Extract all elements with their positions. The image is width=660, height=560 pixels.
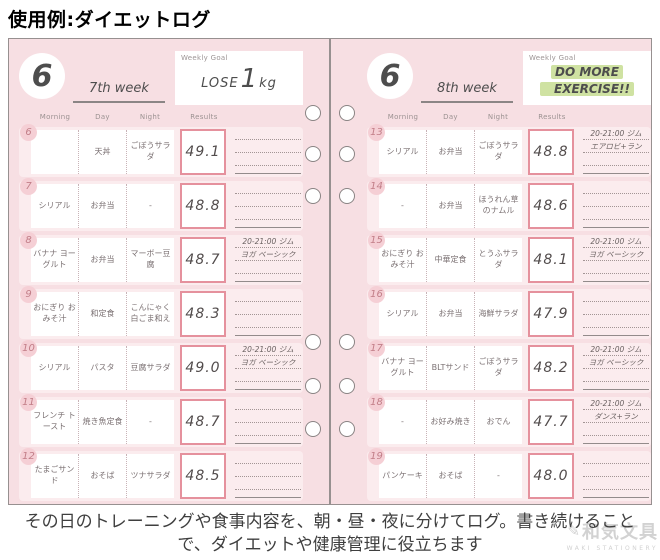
column-headers: Morning Day Night Results: [19, 113, 303, 125]
caption-text: その日のトレーニングや食事内容を、朝・昼・夜に分けてログ。書き続けることで、ダイ…: [10, 511, 650, 557]
notes-lines: 20-21:00 ジム ヨガ ベーシック: [583, 235, 649, 285]
meal-cells: - お好み焼き おでん: [379, 400, 522, 444]
planner-spread: 6 7th week Weekly Goal LOSE1kg Morning D…: [8, 38, 652, 505]
meal-night: -: [475, 454, 522, 498]
header-night: Night: [474, 113, 522, 121]
diary-row: 8 バナナ ヨーグルト お弁当 マーボー豆腐 48.7 20-21:00 ジム …: [19, 235, 303, 285]
note-underline: [235, 490, 301, 498]
date-badge: 17: [368, 340, 385, 357]
header-results: Results: [528, 113, 576, 121]
date-badge: 15: [368, 232, 385, 249]
diary-row: 14 - お弁当 ほうれん草 のナムル 48.6: [367, 181, 651, 231]
notes-lines: [583, 289, 649, 339]
weekly-goal-text: DO MORE EXERCISE!!: [529, 63, 645, 97]
punch-hole: [305, 188, 321, 204]
diary-row: 11 フレンチ トースト 焼き魚定食 - 48.7: [19, 397, 303, 447]
note-underline: [235, 274, 301, 282]
meal-day: パスタ: [79, 346, 127, 390]
notes-lines: [235, 451, 301, 501]
meal-morning: パンケーキ: [379, 454, 427, 498]
month-badge: 6: [19, 53, 65, 99]
week-label: 7th week: [73, 81, 165, 103]
date-badge: 8: [20, 232, 37, 249]
meal-night: とうふサラダ: [475, 238, 522, 282]
weight-result: 48.7: [180, 237, 226, 283]
note-line: [235, 397, 301, 410]
weight-result: 48.0: [528, 453, 574, 499]
note-line: 20-21:00 ジム: [583, 127, 649, 140]
notes-lines: 20-21:00 ジム ヨガ ベーシック: [583, 343, 649, 393]
punch-hole: [339, 146, 355, 162]
weight-result: 49.0: [180, 345, 226, 391]
notes-lines: 20-21:00 ジム ダンス+ラン: [583, 397, 649, 447]
punch-hole: [339, 378, 355, 394]
note-line: ダンス+ラン: [583, 410, 649, 423]
column-headers: Morning Day Night Results: [367, 113, 651, 125]
meal-cells: おにぎり おみそ汁 中華定食 とうふサラダ: [379, 238, 522, 282]
note-line: 20-21:00 ジム: [583, 235, 649, 248]
date-badge: 18: [368, 394, 385, 411]
header-morning: Morning: [31, 113, 79, 121]
note-line: [235, 451, 301, 464]
meal-night: ごぼうサラダ: [475, 130, 522, 174]
date-badge: 14: [368, 178, 385, 195]
meal-night: 海鮮サラダ: [475, 292, 522, 336]
weight-result: 49.1: [180, 129, 226, 175]
meal-day: お弁当: [427, 184, 475, 228]
meal-day: おそば: [427, 454, 475, 498]
day-rows: 13 シリアル お弁当 ごぼうサラダ 48.8 20-21:00 ジム エアロビ…: [367, 127, 651, 501]
meal-morning: シリアル: [31, 184, 79, 228]
meal-day: 天丼: [79, 130, 127, 174]
note-line: [235, 140, 301, 153]
meal-cells: シリアル お弁当 ごぼうサラダ: [379, 130, 522, 174]
diary-row: 15 おにぎり おみそ汁 中華定食 とうふサラダ 48.1 20-21:00 ジ…: [367, 235, 651, 285]
note-line: [235, 302, 301, 315]
meal-night: ごぼうサラダ: [475, 346, 522, 390]
date-badge: 19: [368, 448, 385, 465]
notes-lines: [235, 289, 301, 339]
diary-row: 18 - お好み焼き おでん 47.7 20-21:00 ジム ダンス+ラン: [367, 397, 651, 447]
note-line: [583, 302, 649, 315]
note-underline: [235, 382, 301, 390]
diary-row: 17 バナナ ヨーグルト BLTサンド ごぼうサラダ 48.2 20-21:00…: [367, 343, 651, 393]
note-line: [235, 315, 301, 328]
note-line: ヨガ ベーシック: [583, 356, 649, 369]
note-line: [235, 369, 301, 382]
note-line: エアロビ+ラン: [583, 140, 649, 153]
header-results: Results: [180, 113, 228, 121]
notes-lines: 20-21:00 ジム ヨガ ベーシック: [235, 343, 301, 393]
header-morning: Morning: [379, 113, 427, 121]
diary-row: 13 シリアル お弁当 ごぼうサラダ 48.8 20-21:00 ジム エアロビ…: [367, 127, 651, 177]
punch-hole: [339, 334, 355, 350]
date-badge: 12: [20, 448, 37, 465]
weight-result: 48.7: [180, 399, 226, 445]
notes-lines: [235, 397, 301, 447]
weight-result: 48.8: [180, 183, 226, 229]
notes-lines: [583, 181, 649, 231]
note-underline: [583, 490, 649, 498]
goal-number: 1: [241, 64, 258, 94]
note-underline: [235, 328, 301, 336]
diary-row: 9 おにぎり おみそ汁 和定食 こんにゃく 白ごま和え 48.3: [19, 289, 303, 339]
note-line: [583, 369, 649, 382]
meal-night: -: [127, 400, 174, 444]
note-underline: [583, 220, 649, 228]
weight-result: 48.8: [528, 129, 574, 175]
note-line: [235, 423, 301, 436]
goal-word: LOSE: [201, 76, 239, 91]
note-line: ヨガ ベーシック: [583, 248, 649, 261]
goal-unit: kg: [259, 76, 277, 91]
meal-cells: たまごサンド おそば ツナサラダ: [31, 454, 174, 498]
note-line: [583, 289, 649, 302]
note-line: [583, 261, 649, 274]
note-line: ヨガ ベーシック: [235, 248, 301, 261]
note-underline: [583, 382, 649, 390]
meal-day: お弁当: [79, 184, 127, 228]
header-day: Day: [79, 113, 126, 121]
meal-cells: 天丼 ごぼうサラダ: [31, 130, 174, 174]
weight-result: 48.3: [180, 291, 226, 337]
note-line: [235, 207, 301, 220]
notes-lines: [235, 181, 301, 231]
page-header: 6 7th week Weekly Goal LOSE1kg: [19, 47, 303, 113]
date-badge: 9: [20, 286, 37, 303]
note-line: [235, 194, 301, 207]
note-underline: [235, 220, 301, 228]
note-line: [235, 410, 301, 423]
meal-night: ごぼうサラダ: [127, 130, 174, 174]
note-line: [583, 423, 649, 436]
meal-day: お好み焼き: [427, 400, 475, 444]
meal-night: ほうれん草 のナムル: [475, 184, 522, 228]
note-line: [235, 127, 301, 140]
meal-morning: -: [379, 400, 427, 444]
meal-cells: パンケーキ おそば -: [379, 454, 522, 498]
note-underline: [235, 166, 301, 174]
note-line: 20-21:00 ジム: [583, 397, 649, 410]
goal-line-2: EXERCISE!!: [540, 82, 634, 96]
meal-cells: シリアル お弁当 海鮮サラダ: [379, 292, 522, 336]
note-line: [235, 181, 301, 194]
weekly-goal-label: Weekly Goal: [529, 54, 645, 62]
week-label: 8th week: [421, 81, 513, 103]
note-line: [235, 477, 301, 490]
day-rows: 6 天丼 ごぼうサラダ 49.1 7: [19, 127, 303, 501]
weight-result: 48.5: [180, 453, 226, 499]
note-line: [583, 315, 649, 328]
weight-result: 47.9: [528, 291, 574, 337]
meal-cells: シリアル お弁当 -: [31, 184, 174, 228]
weight-result: 48.1: [528, 237, 574, 283]
date-badge: 10: [20, 340, 37, 357]
date-badge: 16: [368, 286, 385, 303]
notes-lines: 20-21:00 ジム エアロビ+ラン: [583, 127, 649, 177]
weight-result: 48.2: [528, 345, 574, 391]
notes-lines: [235, 127, 301, 177]
note-line: [583, 451, 649, 464]
note-line: [583, 181, 649, 194]
meal-morning: フレンチ トースト: [31, 400, 79, 444]
note-line: ヨガ ベーシック: [235, 356, 301, 369]
weight-result: 47.7: [528, 399, 574, 445]
meal-day: お弁当: [427, 292, 475, 336]
header-night: Night: [126, 113, 174, 121]
note-underline: [583, 328, 649, 336]
meal-cells: シリアル パスタ 豆腐サラダ: [31, 346, 174, 390]
note-line: [235, 289, 301, 302]
punch-hole: [339, 105, 355, 121]
meal-cells: バナナ ヨーグルト BLTサンド ごぼうサラダ: [379, 346, 522, 390]
punch-hole: [305, 334, 321, 350]
note-line: [235, 261, 301, 274]
meal-morning: おにぎり おみそ汁: [31, 292, 79, 336]
meal-morning: おにぎり おみそ汁: [379, 238, 427, 282]
planner-page-left: 6 7th week Weekly Goal LOSE1kg Morning D…: [8, 38, 330, 505]
month-badge: 6: [367, 53, 413, 99]
punch-hole: [305, 421, 321, 437]
punch-hole: [305, 105, 321, 121]
weekly-goal-label: Weekly Goal: [181, 54, 297, 62]
date-badge: 11: [20, 394, 37, 411]
page-header: 6 8th week Weekly Goal DO MORE EXERCISE!…: [367, 47, 651, 113]
meal-day: 和定食: [79, 292, 127, 336]
notes-lines: 20-21:00 ジム ヨガ ベーシック: [235, 235, 301, 285]
meal-day: お弁当: [427, 130, 475, 174]
meal-day: 焼き魚定食: [79, 400, 127, 444]
meal-morning: シリアル: [31, 346, 79, 390]
meal-day: お弁当: [79, 238, 127, 282]
meal-cells: - お弁当 ほうれん草 のナムル: [379, 184, 522, 228]
meal-day: 中華定食: [427, 238, 475, 282]
meal-cells: おにぎり おみそ汁 和定食 こんにゃく 白ごま和え: [31, 292, 174, 336]
punch-hole: [339, 188, 355, 204]
note-line: [583, 194, 649, 207]
meal-morning: シリアル: [379, 130, 427, 174]
weekly-goal-box: Weekly Goal DO MORE EXERCISE!!: [523, 51, 651, 105]
note-line: [235, 153, 301, 166]
note-line: 20-21:00 ジム: [235, 343, 301, 356]
weekly-goal-box: Weekly Goal LOSE1kg: [175, 51, 303, 105]
meal-night: -: [127, 184, 174, 228]
goal-line-1: DO MORE: [551, 65, 623, 79]
diary-row: 16 シリアル お弁当 海鮮サラダ 47.9: [367, 289, 651, 339]
meal-day: おそば: [79, 454, 127, 498]
note-line: [583, 464, 649, 477]
meal-morning: [31, 130, 79, 174]
meal-day: BLTサンド: [427, 346, 475, 390]
meal-morning: たまごサンド: [31, 454, 79, 498]
meal-morning: -: [379, 184, 427, 228]
notes-lines: [583, 451, 649, 501]
note-underline: [583, 166, 649, 174]
note-line: 20-21:00 ジム: [583, 343, 649, 356]
note-line: [583, 153, 649, 166]
meal-morning: シリアル: [379, 292, 427, 336]
meal-night: こんにゃく 白ごま和え: [127, 292, 174, 336]
diary-row: 19 パンケーキ おそば - 48.0: [367, 451, 651, 501]
meal-cells: フレンチ トースト 焼き魚定食 -: [31, 400, 174, 444]
date-badge: 6: [20, 124, 37, 141]
diary-row: 6 天丼 ごぼうサラダ 49.1: [19, 127, 303, 177]
diary-row: 7 シリアル お弁当 - 48.8: [19, 181, 303, 231]
page-title: 使用例:ダイエットログ: [8, 5, 211, 32]
note-line: [235, 464, 301, 477]
note-underline: [583, 436, 649, 444]
weight-result: 48.6: [528, 183, 574, 229]
weekly-goal-text: LOSE1kg: [181, 64, 297, 94]
note-line: [583, 477, 649, 490]
note-line: [583, 207, 649, 220]
meal-morning: バナナ ヨーグルト: [379, 346, 427, 390]
note-line: 20-21:00 ジム: [235, 235, 301, 248]
meal-night: おでん: [475, 400, 522, 444]
date-badge: 13: [368, 124, 385, 141]
punch-hole: [305, 146, 321, 162]
punch-hole: [339, 421, 355, 437]
meal-morning: バナナ ヨーグルト: [31, 238, 79, 282]
meal-night: マーボー豆腐: [127, 238, 174, 282]
meal-cells: バナナ ヨーグルト お弁当 マーボー豆腐: [31, 238, 174, 282]
diary-row: 10 シリアル パスタ 豆腐サラダ 49.0 20-21:00 ジム ヨガ ベー…: [19, 343, 303, 393]
meal-night: ツナサラダ: [127, 454, 174, 498]
note-underline: [235, 436, 301, 444]
diary-row: 12 たまごサンド おそば ツナサラダ 48.5: [19, 451, 303, 501]
header-day: Day: [427, 113, 474, 121]
meal-night: 豆腐サラダ: [127, 346, 174, 390]
punch-hole: [305, 378, 321, 394]
date-badge: 7: [20, 178, 37, 195]
note-underline: [583, 274, 649, 282]
planner-page-right: 6 8th week Weekly Goal DO MORE EXERCISE!…: [330, 38, 652, 505]
